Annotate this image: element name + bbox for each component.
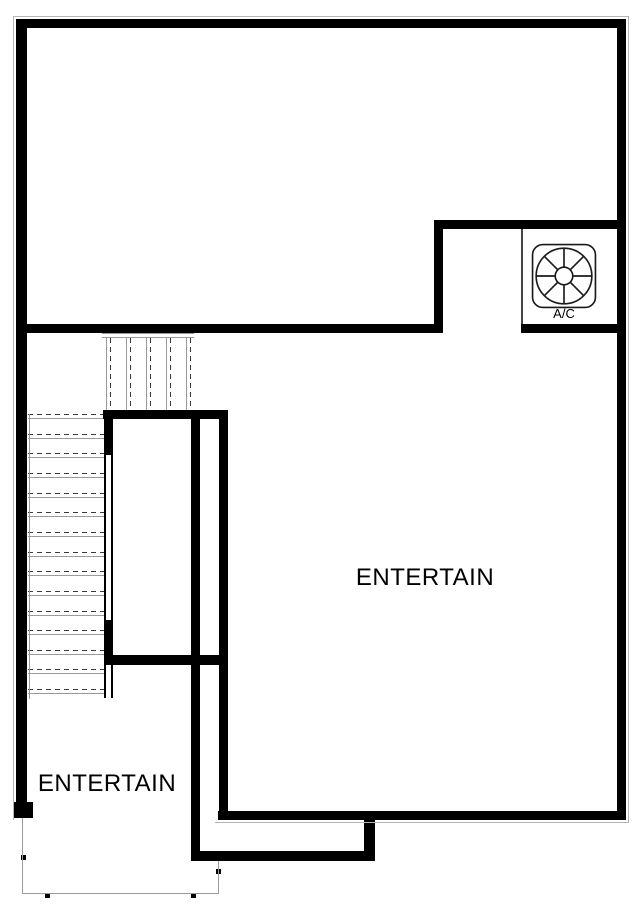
stair-tread [28, 497, 104, 498]
stair-tread [28, 673, 104, 674]
room-label-entertain-main: ENTERTAIN [356, 564, 494, 592]
upper-flight-tread-dash [110, 338, 111, 410]
stair-tread-dash [28, 650, 104, 651]
upper-flight-tread [106, 338, 107, 410]
ac-fan-icon [531, 243, 597, 309]
ac-closet-partition-line [521, 229, 523, 324]
outer-hairline-right [628, 16, 629, 822]
bottom-right-exterior-wall [218, 811, 626, 820]
stair-tread-dash [28, 669, 104, 670]
stair-tread [28, 634, 104, 635]
stair-tread-dash [28, 493, 104, 494]
stair-tread [28, 693, 104, 694]
stair-tread-dash [28, 611, 104, 612]
stair-tread [28, 457, 104, 458]
upper-flight-tread-dash [190, 338, 191, 410]
outer-hairline-bottom [215, 822, 629, 823]
stair-open-edge-lower [104, 665, 113, 698]
stair-tread [28, 536, 104, 537]
porch-left-line [22, 818, 23, 894]
stair-tread [28, 477, 104, 478]
mid-horizontal-wall [16, 324, 443, 333]
stair-tread [28, 438, 104, 439]
upper-flight-tread-dash [150, 338, 151, 410]
outer-hairline-left [13, 16, 14, 820]
ac-unit-label: A/C [531, 306, 597, 321]
ac-closet-top-wall [434, 220, 617, 229]
inner-wall-left [191, 410, 200, 861]
stair-tread [28, 595, 104, 596]
stair-tread-dash [28, 552, 104, 553]
bottom-left-wall [191, 851, 375, 861]
porch-bottom-line [22, 893, 219, 894]
stair-top-wall [103, 410, 228, 419]
stair-tread-dash [28, 434, 104, 435]
mid-left-horizontal-wall [104, 655, 228, 665]
upper-flight-tread [186, 338, 187, 410]
stair-tread [28, 615, 104, 616]
upper-flight-tread [166, 338, 167, 410]
stair-tread-dash [28, 414, 104, 415]
upper-flight-tread [126, 338, 127, 410]
stair-header-line-1 [102, 333, 194, 334]
stair-tread-dash [28, 473, 104, 474]
stair-tread-dash [28, 532, 104, 533]
upper-flight-tread [146, 338, 147, 410]
stair-tread-dash [28, 689, 104, 690]
right-exterior-wall [617, 19, 626, 820]
stair-tread-dash [28, 512, 104, 513]
upper-flight-tread-dash [130, 338, 131, 410]
floor-plan: ENTERTAIN ENTERTAIN A/C [0, 0, 640, 921]
stair-tread-dash [28, 453, 104, 454]
room-label-entertain-lower: ENTERTAIN [38, 770, 176, 798]
left-exterior-wall [16, 19, 27, 818]
stair-left-stringer [29, 414, 30, 699]
stair-tread-dash [28, 591, 104, 592]
upper-flight-tread-dash [170, 338, 171, 410]
stair-tread [28, 654, 104, 655]
stair-right-wall-lower [104, 620, 113, 665]
ac-closet-bottom-wall [521, 324, 617, 333]
stair-tread-dash [28, 630, 104, 631]
outer-hairline-top [13, 16, 629, 17]
stair-tread [28, 575, 104, 576]
stair-tread [28, 516, 104, 517]
stair-open-edge-upper [104, 453, 113, 623]
inner-wall-right [219, 410, 228, 820]
porch-right-line [218, 861, 219, 894]
stair-tread-dash [28, 571, 104, 572]
stair-header-line-2 [102, 337, 194, 338]
top-exterior-wall [16, 19, 626, 28]
stair-tread [28, 418, 104, 419]
notch-vertical-wall [434, 220, 443, 333]
stair-tread [28, 556, 104, 557]
